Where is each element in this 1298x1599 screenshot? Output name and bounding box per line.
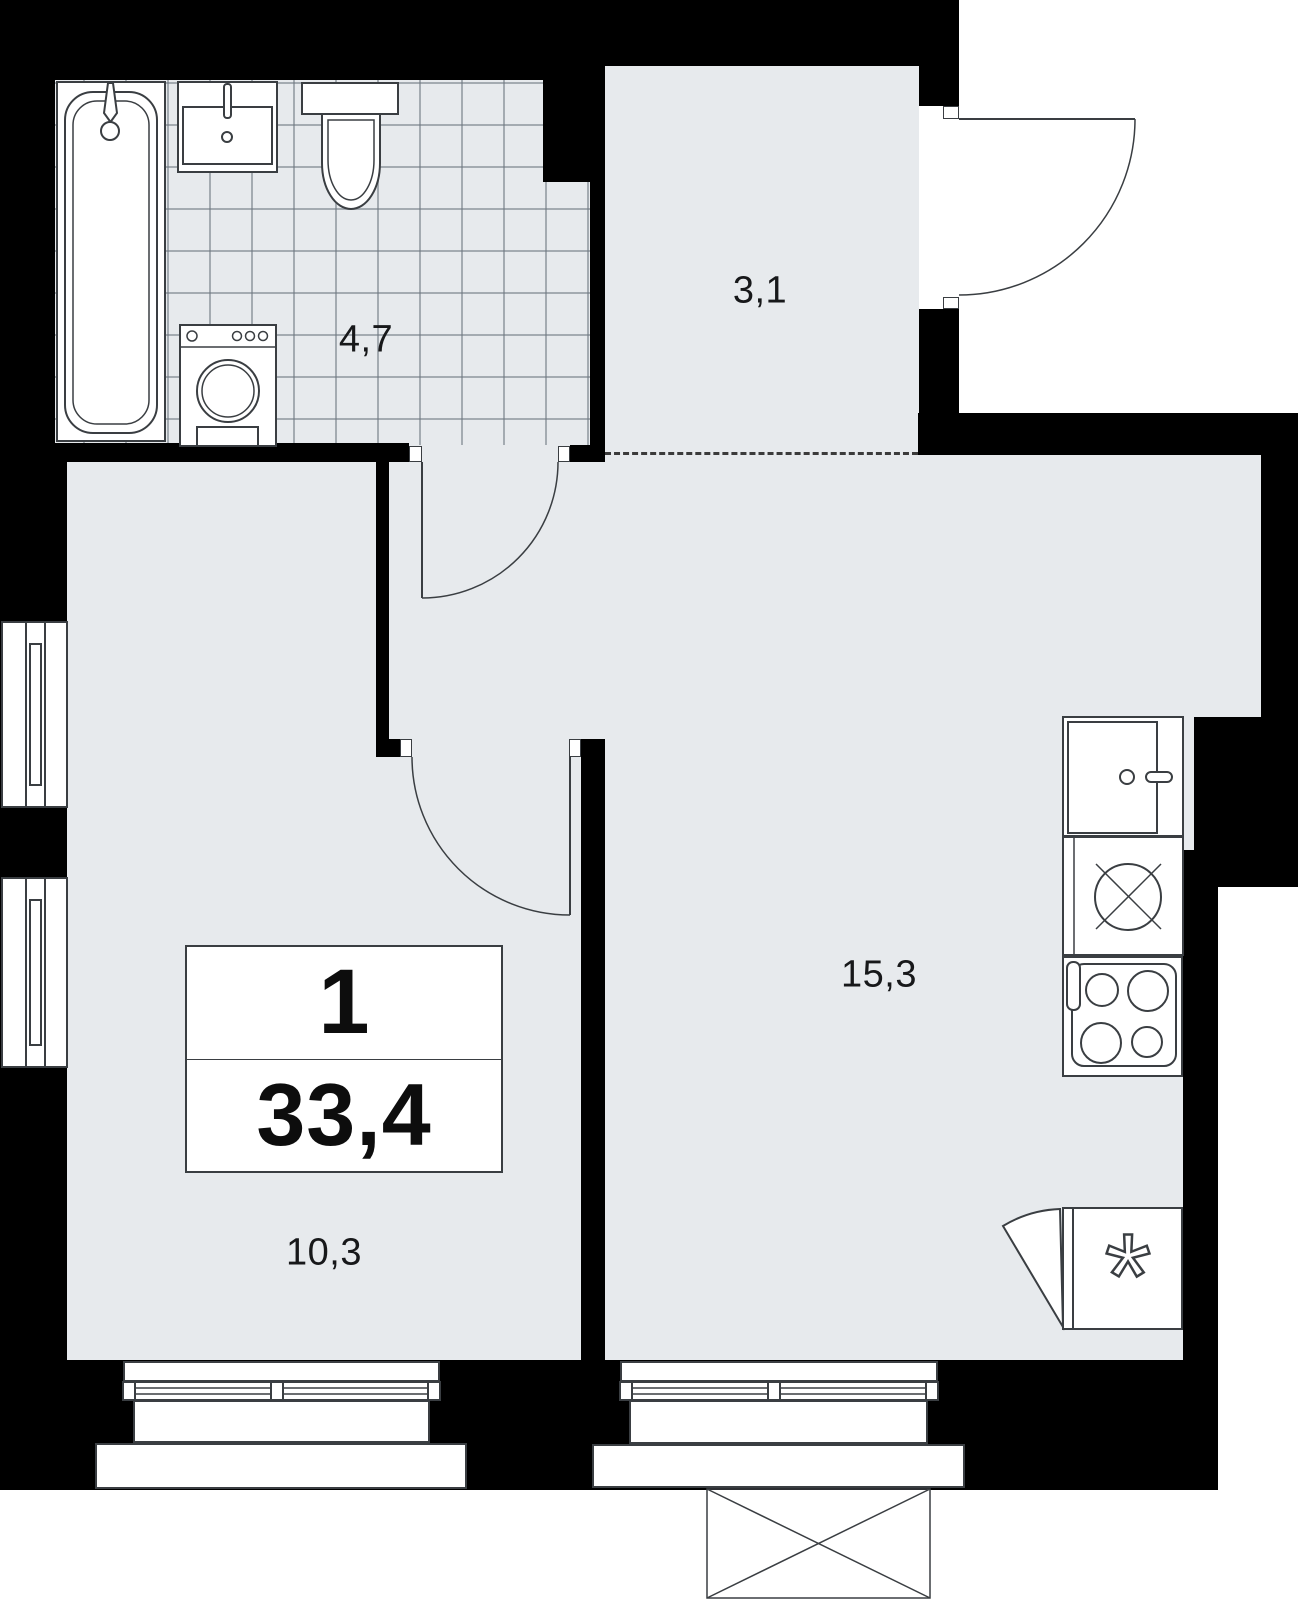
unit-rooms-count: 1 (187, 947, 501, 1060)
washing-machine-icon (180, 325, 276, 446)
entrance-door-swing-icon (959, 119, 1135, 295)
hob-icon (1063, 837, 1183, 955)
kitchen-sink-icon (1063, 717, 1183, 836)
plan-drawing-layer: * (0, 0, 1298, 1599)
window-icon (2, 622, 67, 807)
snowflake-icon: * (1105, 1209, 1152, 1343)
washbasin-icon (178, 82, 277, 172)
bathtub-icon (57, 82, 165, 441)
living-kitchen-area-label: 15,3 (841, 954, 917, 997)
hallway-area-label: 3,1 (733, 270, 787, 313)
unit-total-area: 33,4 (187, 1060, 501, 1172)
bathroom-area-label: 4,7 (339, 319, 393, 362)
fridge-icon: * (1003, 1208, 1182, 1343)
door-swing-icon (412, 757, 570, 915)
floor-plan: * (0, 0, 1298, 1599)
room-area-label: 10,3 (286, 1232, 362, 1275)
window-glazing (123, 1382, 440, 1400)
toilet-icon (302, 83, 398, 209)
stove-icon (1063, 957, 1182, 1076)
unit-info-box: 1 33,4 (185, 945, 503, 1173)
door-swing-icon (422, 462, 558, 598)
balcony-icon (707, 1489, 930, 1598)
window-glazing (620, 1382, 938, 1400)
window-icon (2, 878, 67, 1067)
